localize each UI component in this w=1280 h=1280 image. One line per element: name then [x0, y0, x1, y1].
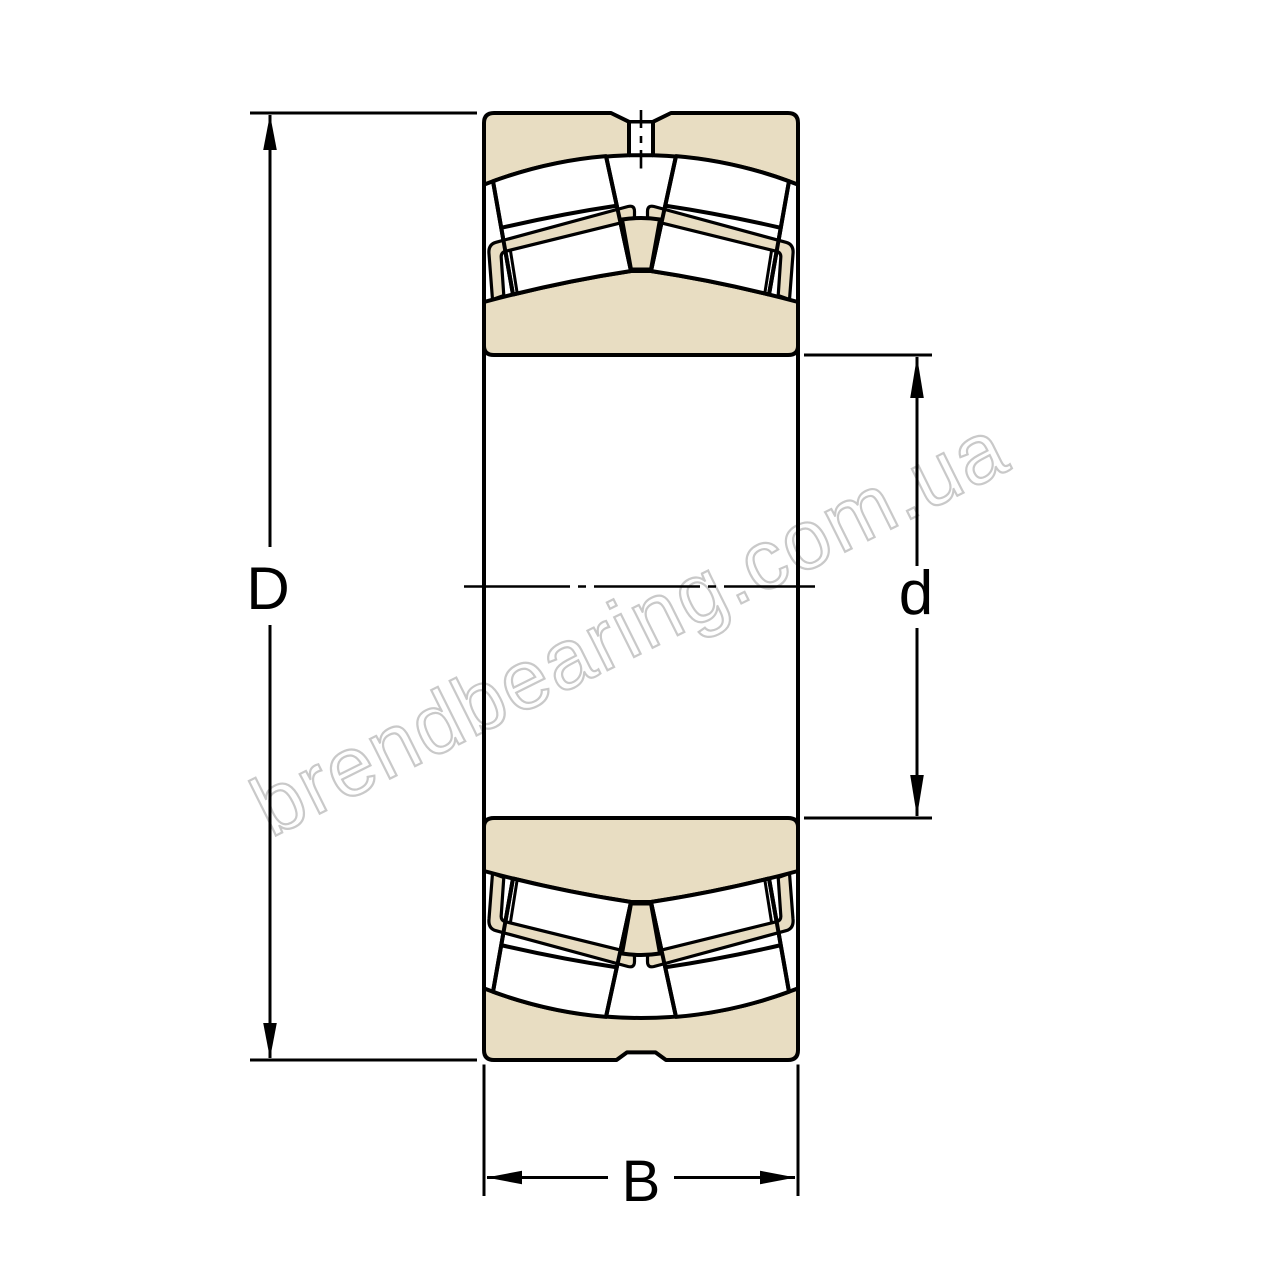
svg-text:D: D — [246, 555, 289, 622]
svg-text:B: B — [622, 1149, 661, 1214]
svg-text:d: d — [899, 559, 933, 628]
